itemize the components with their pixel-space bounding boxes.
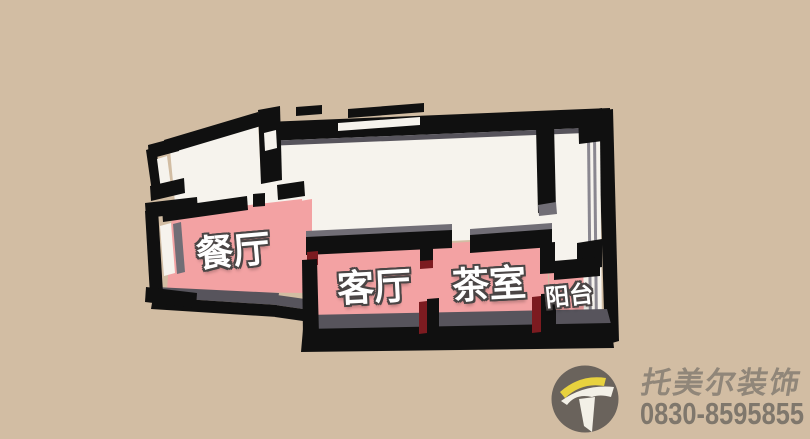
living-left-wall [302,259,319,337]
top-window-sill [348,103,424,118]
right-wall-pier-top [578,108,603,144]
balcony-label: 阳台 [543,274,594,314]
balcony-corner-wall [540,242,555,274]
floor-plan-scene: 餐厅 客厅 茶室 阳台 托美尔装饰 0830-8595855 [0,0,810,439]
dining-bay-outer-wall [145,209,163,295]
tea-balcony-stub-face [532,296,541,333]
dining-room-label: 餐厅 [194,218,272,278]
phone-number: 0830-8595855 [640,396,804,432]
living-room-label: 客厅 [336,255,413,313]
tea-room-label: 茶室 [451,252,528,310]
living-tea-divider-stub-face [420,260,433,269]
divider-window [264,130,277,151]
company-logo [548,362,624,438]
living-tea-stub-face [419,301,427,334]
main-room-partition-wall [536,124,556,213]
living-tea-stub [427,298,439,335]
top-wall-pier [296,105,322,116]
entry-door-jamb [253,193,265,207]
